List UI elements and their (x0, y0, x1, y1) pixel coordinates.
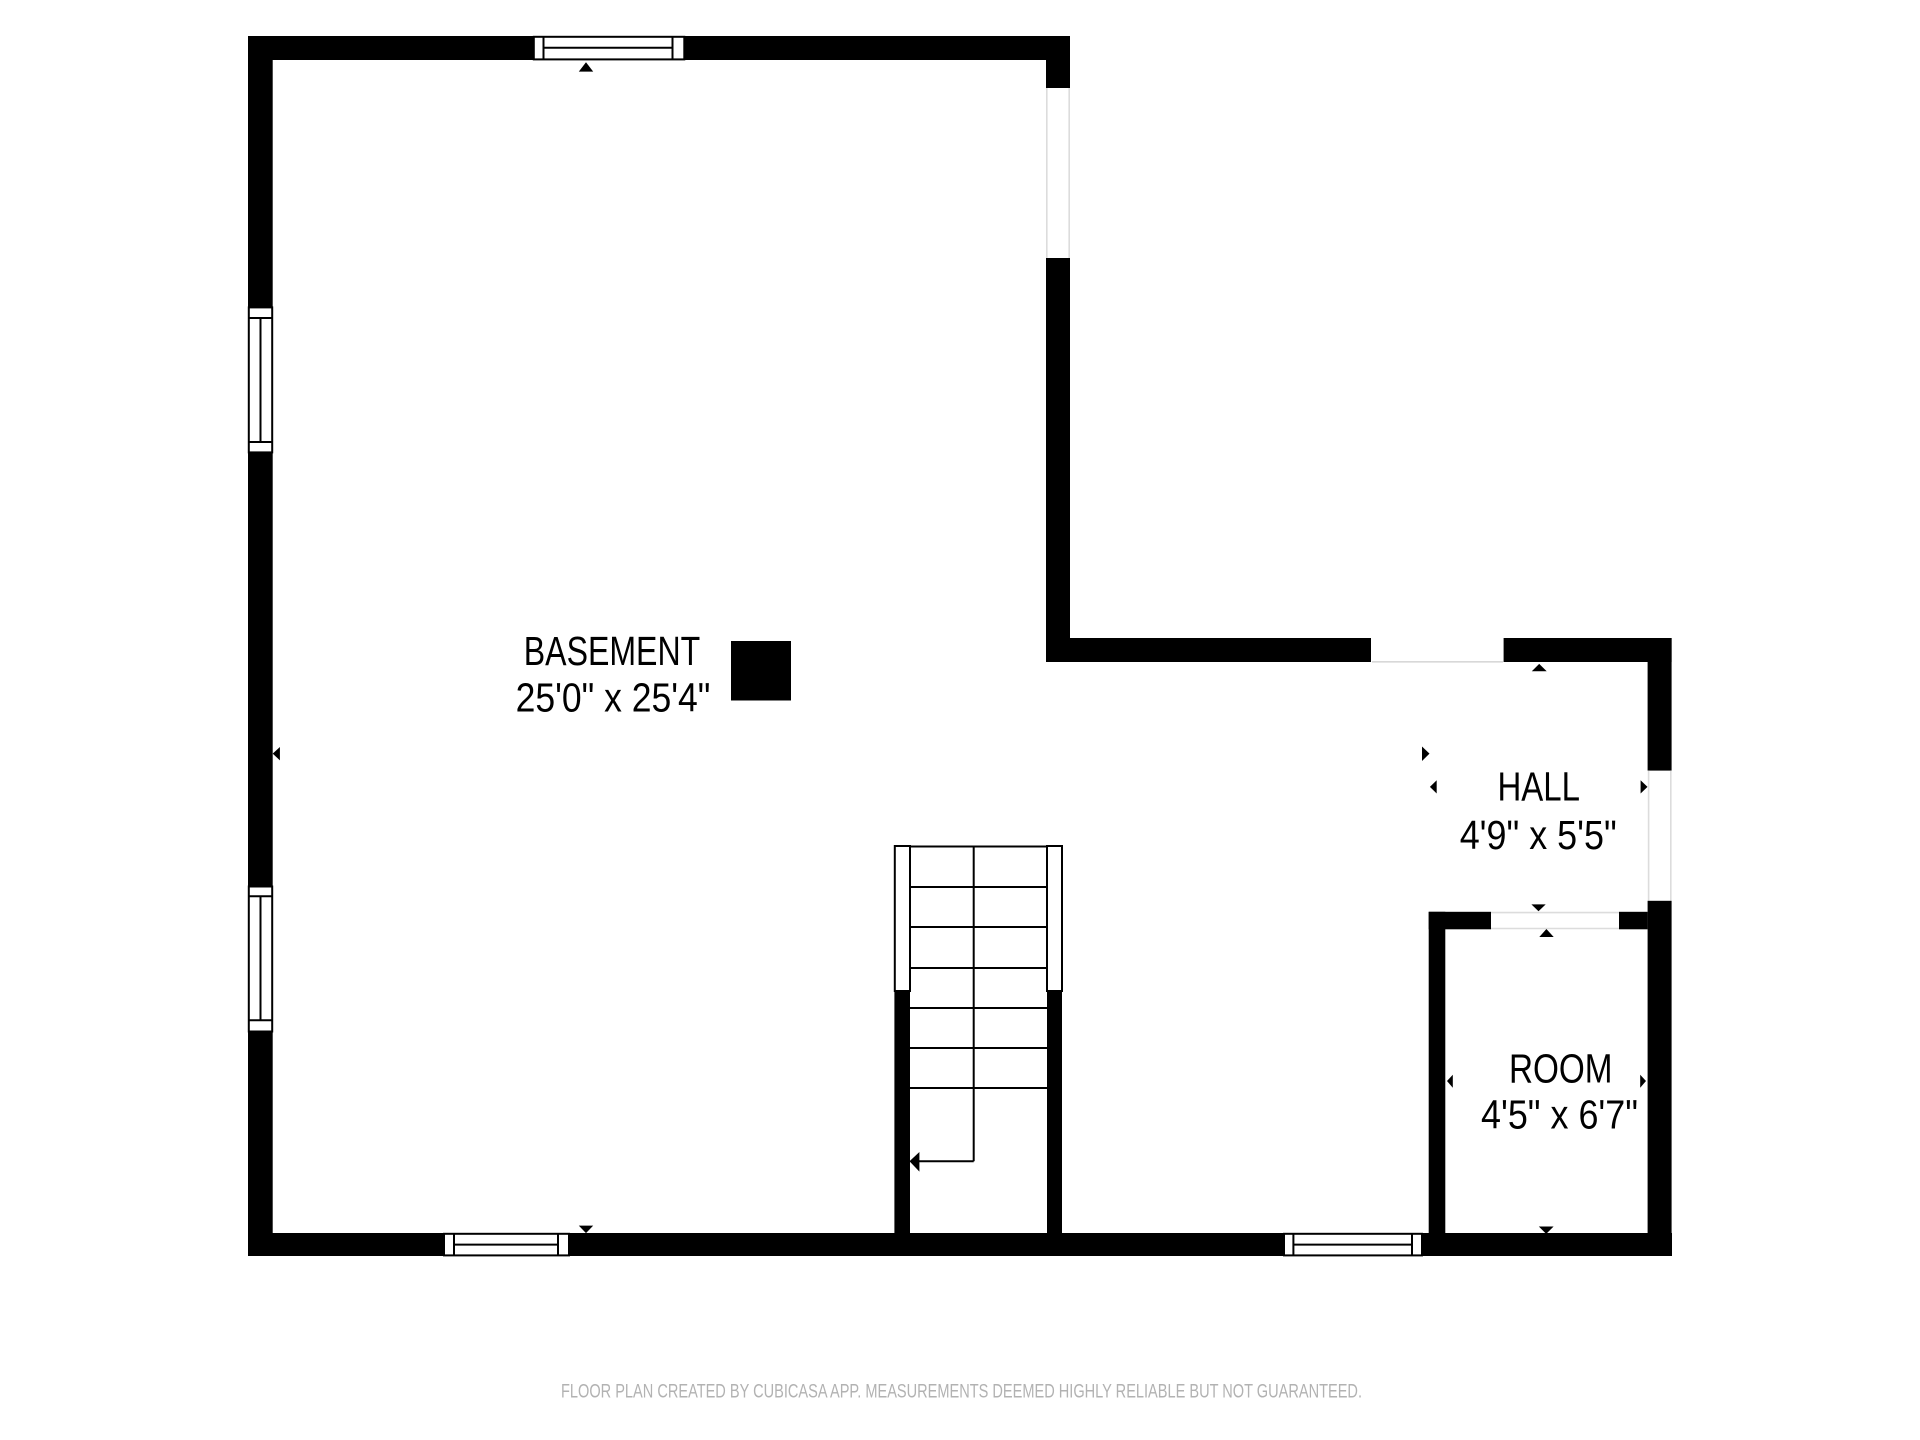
svg-text:4'5" x 6'7": 4'5" x 6'7" (1481, 1092, 1638, 1138)
svg-text:FLOOR PLAN CREATED BY CUBICASA: FLOOR PLAN CREATED BY CUBICASA APP. MEAS… (561, 1382, 1362, 1403)
svg-text:ROOM: ROOM (1509, 1046, 1613, 1092)
svg-text:HALL: HALL (1497, 764, 1580, 810)
svg-text:4'9" x 5'5": 4'9" x 5'5" (1460, 812, 1617, 858)
svg-text:25'0" x 25'4": 25'0" x 25'4" (516, 675, 711, 721)
svg-text:BASEMENT: BASEMENT (524, 628, 700, 674)
